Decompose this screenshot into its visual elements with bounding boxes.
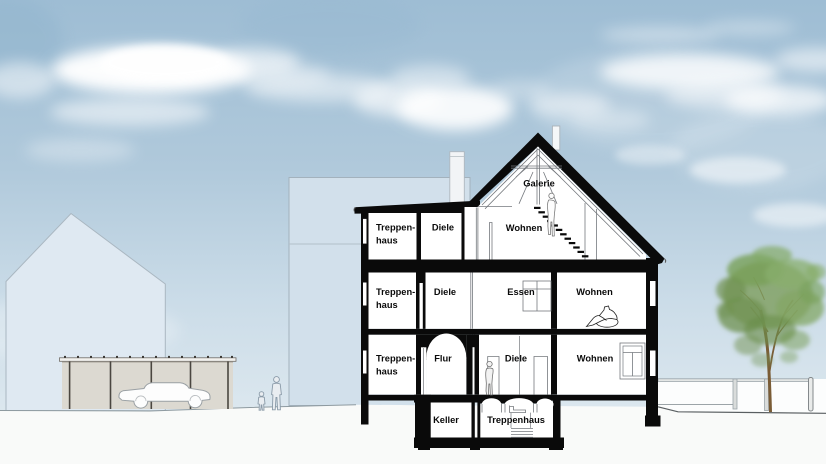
svg-text:Diele: Diele — [505, 354, 527, 364]
svg-text:Treppenhaus: Treppenhaus — [487, 415, 545, 425]
svg-text:Treppen-: Treppen- — [376, 354, 415, 364]
svg-text:haus: haus — [376, 367, 398, 377]
svg-text:Wohnen: Wohnen — [576, 287, 613, 297]
svg-text:Wohnen: Wohnen — [577, 354, 614, 364]
svg-text:haus: haus — [376, 236, 398, 246]
svg-text:Wohnen: Wohnen — [506, 223, 543, 233]
svg-text:Keller: Keller — [433, 415, 459, 425]
svg-text:Diele: Diele — [434, 287, 456, 297]
svg-text:Flur: Flur — [434, 354, 452, 364]
svg-text:Diele: Diele — [432, 223, 454, 233]
svg-text:Treppen-: Treppen- — [376, 287, 415, 297]
svg-text:haus: haus — [376, 300, 398, 310]
svg-text:Treppen-: Treppen- — [376, 223, 415, 233]
svg-text:Essen: Essen — [507, 287, 535, 297]
svg-text:Galerie: Galerie — [523, 178, 555, 188]
